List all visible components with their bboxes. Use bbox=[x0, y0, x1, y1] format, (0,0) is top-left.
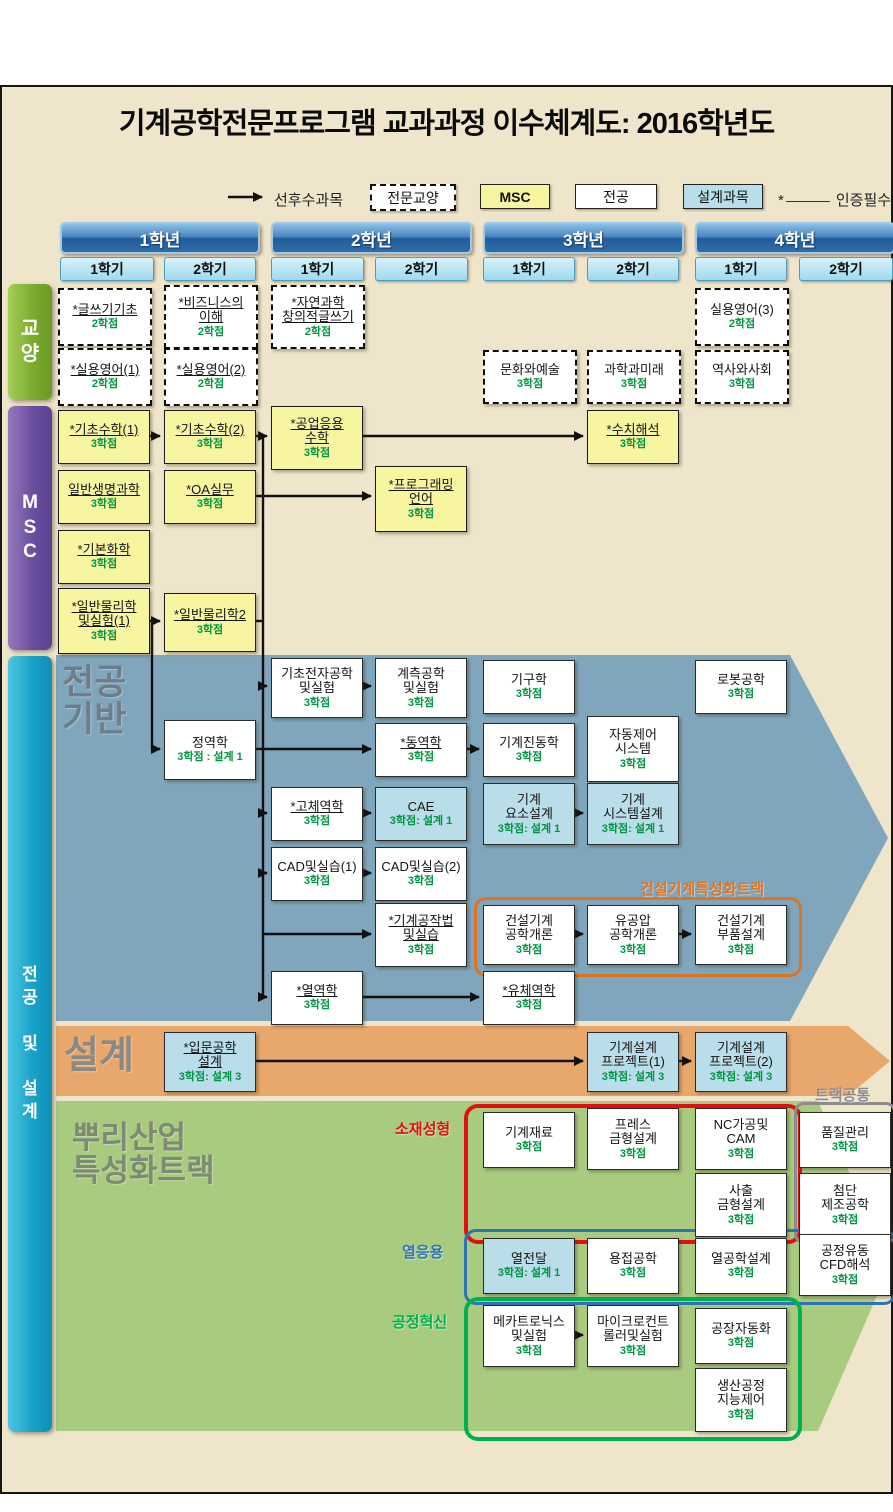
course-box: 문화와예술3학점 bbox=[483, 350, 577, 404]
course-box: *실용영어(2)2학점 bbox=[164, 348, 258, 406]
course-box: CAD및실습(2)3학점 bbox=[375, 847, 467, 901]
course-box: 마이크로컨트 롤러및실험3학점 bbox=[587, 1305, 679, 1367]
semester-header: 1학기 bbox=[60, 257, 154, 281]
course-box: *기본화학3학점 bbox=[58, 530, 150, 584]
course-box: 품질관리3학점 bbox=[799, 1112, 891, 1168]
course-box: 기계 시스템설계3학점: 설계 1 bbox=[587, 783, 679, 845]
course-box: 자동제어 시스템3학점 bbox=[587, 716, 679, 782]
legend-box-msc: MSC bbox=[480, 184, 550, 209]
legend-cert: *인증필수 bbox=[778, 189, 891, 210]
course-box: CAE3학점: 설계 1 bbox=[375, 787, 467, 841]
page-title: 기계공학전문프로그램 교과과정 이수체계도: 2016학년도 bbox=[0, 100, 893, 142]
year-header: 4학년 bbox=[695, 222, 893, 254]
construction-track-label: 건설기계특성화트랙 bbox=[640, 878, 764, 899]
curriculum-flowchart: 기계공학전문프로그램 교과과정 이수체계도: 2016학년도 선후수과목 전문교… bbox=[0, 0, 893, 1512]
year-header: 2학년 bbox=[271, 222, 472, 254]
legend-box-design: 설계과목 bbox=[683, 184, 763, 209]
semester-header: 2학기 bbox=[375, 257, 468, 281]
course-box: *유체역학3학점 bbox=[483, 971, 575, 1025]
course-box: *공업응용 수학3학점 bbox=[271, 406, 363, 470]
cert-asterisk: * bbox=[778, 192, 784, 209]
course-box: *기초수학(2)3학점 bbox=[164, 410, 256, 464]
course-box: 사출 금형설계3학점 bbox=[695, 1173, 787, 1237]
course-box: *열역학3학점 bbox=[271, 971, 363, 1025]
sidebar-major-and-design: 전 공 및 설 계 bbox=[8, 656, 52, 1432]
course-box: 기초전자공학 및실험3학점 bbox=[271, 658, 363, 718]
course-box: *고체역학3학점 bbox=[271, 787, 363, 841]
course-box: *수치해석3학점 bbox=[587, 410, 679, 464]
course-box: 첨단 제조공학3학점 bbox=[799, 1173, 891, 1237]
legend-prereq-label: 선후수과목 bbox=[274, 189, 343, 210]
legend-box-major: 전공 bbox=[575, 184, 657, 209]
course-box: *입문공학 설계3학점: 설계 3 bbox=[164, 1032, 256, 1092]
course-box: 실용영어(3)2학점 bbox=[695, 288, 789, 346]
semester-header: 2학기 bbox=[164, 257, 256, 281]
process-innovation-track-label: 공정혁신 bbox=[392, 1311, 447, 1332]
semester-header: 2학기 bbox=[799, 257, 893, 281]
semester-header: 1학기 bbox=[271, 257, 364, 281]
course-box: 공장자동화3학점 bbox=[695, 1308, 787, 1364]
course-box: 건설기계 공학개론3학점 bbox=[483, 905, 575, 965]
sidebar-general-education: 교 양 bbox=[8, 284, 52, 400]
course-box: *자연과학 창의적글쓰기2학점 bbox=[271, 285, 365, 349]
course-box: 용접공학3학점 bbox=[587, 1238, 679, 1294]
course-box: *실용영어(1)2학점 bbox=[58, 348, 152, 406]
track-common-label: 트랙공통 bbox=[815, 1084, 870, 1105]
course-box: 기계 요소설계3학점: 설계 1 bbox=[483, 783, 575, 845]
course-box: 공정유동 CFD해석3학점 bbox=[799, 1234, 891, 1296]
course-box: 프레스 금형설계3학점 bbox=[587, 1108, 679, 1170]
course-box: 메카트로닉스 및실험3학점 bbox=[483, 1305, 575, 1367]
course-box: *동역학3학점 bbox=[375, 723, 467, 777]
course-box: 기계설계 프로젝트(2)3학점: 설계 3 bbox=[695, 1032, 787, 1092]
year-header: 3학년 bbox=[483, 222, 684, 254]
course-box: 계측공학 및실험3학점 bbox=[375, 658, 467, 718]
legend-box-ge: 전문교양 bbox=[370, 184, 456, 211]
course-box: 유공압 공학개론3학점 bbox=[587, 905, 679, 965]
course-box: *비즈니스의 이해2학점 bbox=[164, 285, 258, 349]
course-box: 열전달3학점: 설계 1 bbox=[483, 1238, 575, 1294]
course-box: 생산공정 지능제어3학점 bbox=[695, 1368, 787, 1432]
semester-header: 1학기 bbox=[483, 257, 575, 281]
course-box: 로봇공학3학점 bbox=[695, 660, 787, 714]
course-box: 기계설계 프로젝트(1)3학점: 설계 3 bbox=[587, 1032, 679, 1092]
course-box: 기구학3학점 bbox=[483, 660, 575, 714]
course-box: 일반생명과학3학점 bbox=[58, 470, 150, 524]
course-box: *기계공작법 및실습3학점 bbox=[375, 903, 467, 967]
course-box: *글쓰기기초2학점 bbox=[58, 288, 152, 346]
course-box: 기계재료3학점 bbox=[483, 1112, 575, 1168]
semester-header: 2학기 bbox=[587, 257, 679, 281]
sidebar-msc: M S C bbox=[8, 406, 52, 650]
cert-underline bbox=[786, 201, 830, 202]
material-forming-track-label: 소재성형 bbox=[395, 1118, 450, 1139]
course-box: 역사와사회3학점 bbox=[695, 350, 789, 404]
course-box: *OA실무3학점 bbox=[164, 470, 256, 524]
course-box: 기계진동학3학점 bbox=[483, 723, 575, 777]
course-box: 건설기계 부품설계3학점 bbox=[695, 905, 787, 965]
semester-header: 1학기 bbox=[695, 257, 787, 281]
course-box: *일반물리학 및실험(1)3학점 bbox=[58, 588, 150, 654]
course-box: 정역학3학점 : 설계 1 bbox=[164, 720, 256, 780]
course-box: *프로그래밍 언어3학점 bbox=[375, 466, 467, 532]
thermal-track-label: 열응용 bbox=[402, 1241, 443, 1262]
year-header: 1학년 bbox=[60, 222, 260, 254]
course-box: *기초수학(1)3학점 bbox=[58, 410, 150, 464]
course-box: 열공학설계3학점 bbox=[695, 1238, 787, 1294]
course-box: NC가공및 CAM3학점 bbox=[695, 1108, 787, 1170]
course-box: *일반물리학23학점 bbox=[164, 593, 256, 652]
course-box: 과학과미래3학점 bbox=[587, 350, 681, 404]
course-box: CAD및실습(1)3학점 bbox=[271, 847, 363, 901]
cert-label: 인증필수 bbox=[836, 192, 891, 209]
